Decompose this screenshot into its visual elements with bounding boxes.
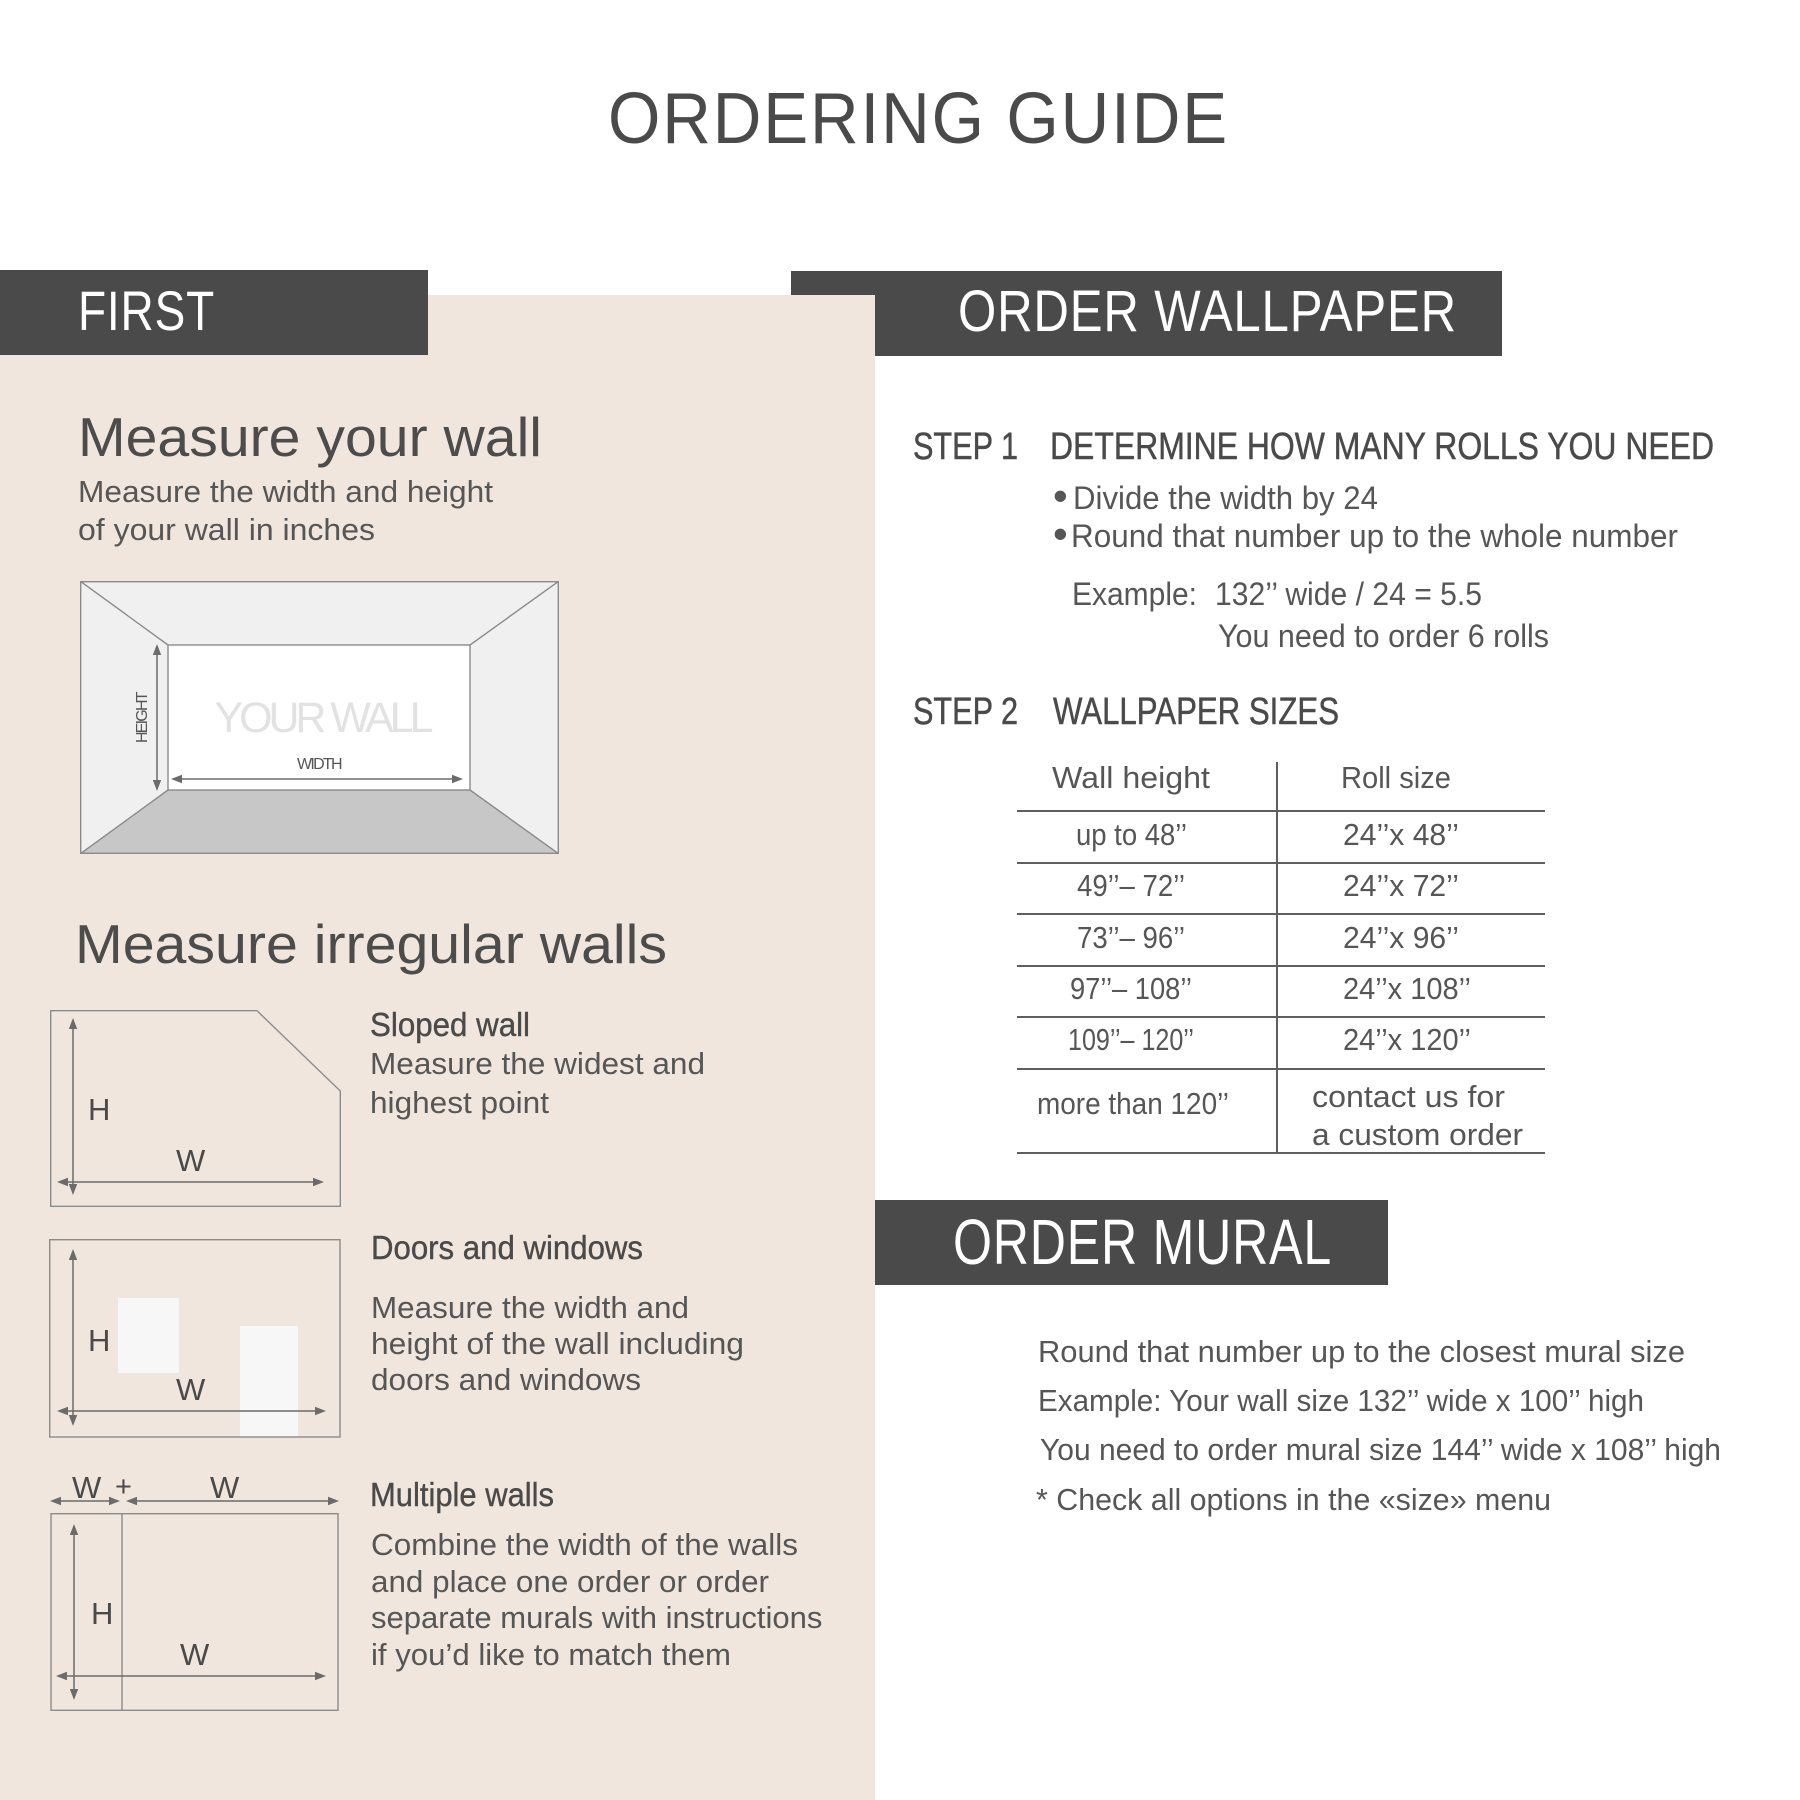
svg-text:W: W [72,1472,102,1505]
svg-text:WIDTH: WIDTH [297,756,343,773]
svg-text:+: + [115,1472,132,1503]
svg-text:HEIGHT: HEIGHT [134,691,151,743]
svg-text:H: H [88,1323,110,1358]
svg-text:W: W [210,1472,240,1505]
svg-text:W: W [180,1637,210,1672]
svg-text:H: H [91,1596,113,1631]
svg-text:YOUR WALL: YOUR WALL [215,694,438,742]
svg-text:W: W [176,1143,206,1178]
svg-text:W: W [176,1372,206,1407]
svg-text:H: H [88,1092,110,1127]
